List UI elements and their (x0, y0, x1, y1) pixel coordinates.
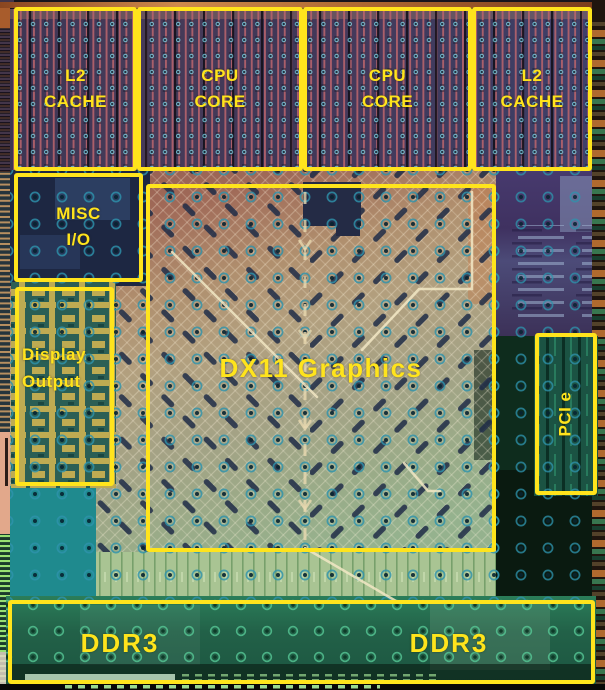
label-line: Output (22, 368, 81, 395)
region-label-l2-cache-left: L2 CACHE (44, 63, 107, 115)
label-line: CORE (362, 89, 413, 115)
region-label-l2-cache-right: L2 CACHE (501, 63, 564, 115)
label-line: DX11 Graphics (219, 353, 422, 383)
label-line: CACHE (44, 89, 107, 115)
region-label-misc-io: MISC I/O (56, 201, 101, 253)
label-line: PCI e (553, 391, 579, 436)
label-line: CACHE (501, 89, 564, 115)
region-box-pcie: PCI e (535, 333, 597, 495)
region-label-ddr3-left: DDR3 (55, 628, 185, 659)
label-line: L2 (65, 63, 86, 89)
label-line: Display (22, 341, 86, 368)
die-photo: L2 CACHE CPU CORE CPU CORE L2 CACHE MISC… (0, 0, 605, 690)
label-line: CPU (369, 63, 406, 89)
region-label-dx11-graphics: DX11 Graphics (219, 353, 422, 383)
region-label-cpu-core-left: CPU CORE (194, 63, 245, 115)
region-box-dx11-graphics: DX11 Graphics (146, 184, 496, 552)
region-box-ddr3: DDR3 DDR3 (8, 600, 595, 684)
region-label-display-output: Display Output (22, 341, 86, 395)
region-box-l2-cache-left: L2 CACHE (14, 7, 137, 171)
label-line: L2 (522, 63, 543, 89)
region-box-misc-io: MISC I/O (14, 173, 143, 282)
label-line: I/O (66, 227, 90, 253)
region-box-cpu-core-right: CPU CORE (303, 7, 472, 171)
label-line: MISC (56, 201, 101, 227)
region-box-l2-cache-right: L2 CACHE (472, 7, 592, 171)
region-box-cpu-core-left: CPU CORE (137, 7, 303, 171)
label-line: CPU (201, 63, 238, 89)
region-label-cpu-core-right: CPU CORE (362, 63, 413, 115)
region-label-pcie: PCI e (553, 391, 579, 436)
region-box-display-output: Display Output (15, 287, 114, 486)
region-label-ddr3-right: DDR3 (384, 628, 514, 659)
label-line: CORE (194, 89, 245, 115)
